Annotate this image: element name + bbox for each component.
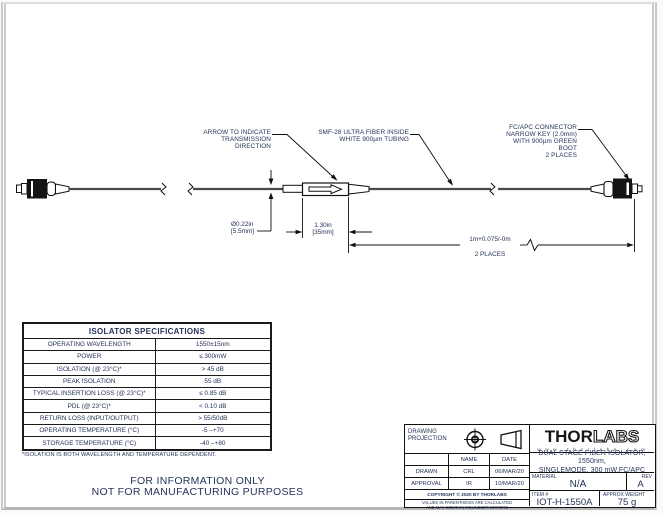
disclaimer-cell: VALUES IN PARENTHESIS ARE CALCULATED AND… [405,500,530,506]
table-row: OPERATING WAVELENGTH1550±15nm [23,339,271,351]
table-row: TYPICAL INSERTION LOSS (@ 23°C)*≤ 0.85 d… [23,388,271,400]
weight-cell: APPROX WEIGHT 75 g [600,491,654,506]
approval-label-cell: APPROVAL [405,478,449,490]
logo-thor-text: THOR [545,427,593,447]
table-row: ISOLATION (@ 23°C)*> 45 dB [23,363,271,375]
drawn-date-cell: 06/MAR/20 [490,466,530,478]
spec-label: OPERATING WAVELENGTH [23,339,155,351]
callout-transmission-arrow: ARROW TO INDICATE TRANSMISSION DIRECTION [184,129,271,150]
logo-labs-text: LABS [593,427,639,447]
drawing-sheet: ARROW TO INDICATE TRANSMISSION DIRECTION… [0,0,663,515]
isolator-spec-table: ISOLATOR SPECIFICATIONS OPERATING WAVELE… [22,322,272,451]
leader-arrowheads [331,173,630,185]
spec-label: STORAGE TEMPERATURE (°C) [23,437,155,450]
spec-table-title: ISOLATOR SPECIFICATIONS [23,323,271,339]
spec-value: -40 –+80 [155,437,271,450]
projection-cell: DRAWING PROJECTION [405,425,530,454]
table-row: STORAGE TEMPERATURE (°C)-40 –+80 [23,437,271,450]
rev-value: A [627,479,654,490]
item-cell: ITEM # IOT-H-1550A [530,491,600,506]
spec-value: ≤ 300mW [155,351,271,363]
item-number-value: IOT-H-1550A [530,497,599,508]
callout-fiber-tubing: SMF-28 ULTRA FIBER INSIDE WHITE 900µm TU… [318,129,409,143]
dimension-diameter: Ø0.22in [5.5mm] [231,221,267,236]
left-fcapc-connector [17,179,70,199]
copyright-cell: COPYRIGHT © 2020 BY THORLABS [405,490,530,500]
spec-label: POWER [23,351,155,363]
isolator-body [283,183,369,196]
table-row: PDL (@ 23°C)*< 0.10 dB [23,400,271,412]
blank-header-cell [405,454,449,466]
approval-name-cell: IR [449,478,490,490]
spec-value: -5 –+70 [155,425,271,437]
title-block: DRAWING PROJECTION NAME DATE DRAWN CRL 0… [404,424,656,508]
rev-cell: REV A [627,473,654,491]
spec-value: 1550±15nm [155,339,271,351]
projection-label: DRAWING PROJECTION [408,429,447,443]
spec-value: 55 dB [155,375,271,387]
spec-label: PEAK ISOLATION [23,375,155,387]
table-row: OPERATING TEMPERATURE (°C)-5 –+70 [23,425,271,437]
approval-date-cell: 10/MAR/20 [490,478,530,490]
spec-label: TYPICAL INSERTION LOSS (@ 23°C)* [23,388,155,400]
material-value: N/A [530,479,626,490]
spec-value: < 0.10 dB [155,400,271,412]
right-fcapc-connector [591,179,642,199]
spec-label: OPERATING TEMPERATURE (°C) [23,425,155,437]
spec-label: PDL (@ 23°C)* [23,400,155,412]
thorlabs-logo: THORLABS [530,427,654,447]
product-title-cell: DUAL STAGE FIBER ISOLATOR, 1550nm, SINGL… [530,453,654,473]
drawn-name-cell: CRL [449,466,490,478]
fiber-length-places: 2 PLACES [475,251,506,258]
spec-label: ISOLATION (@ 23°C)* [23,363,155,375]
name-header-cell: NAME [449,454,490,466]
spec-value: ≤ 0.85 dB [155,388,271,400]
information-only-notice: FOR INFORMATION ONLY NOT FOR MANUFACTURI… [90,476,305,498]
projection-symbols-icon [461,427,527,452]
table-row: POWER≤ 300mW [23,351,271,363]
dimension-body-length: 1.30in [35mm] [304,222,342,237]
dimension-fiber-length: 1m+0.075/-0m 2 PLACES [458,236,522,258]
table-row: PEAK ISOLATION55 dB [23,375,271,387]
table-row: RETURN LOSS (INPUT/OUTPUT)> 55/50dB [23,412,271,424]
spec-value: > 55/50dB [155,412,271,424]
fiber-length-value: 1m+0.075/-0m [469,236,510,243]
spec-value: > 45 dB [155,363,271,375]
product-title: DUAL STAGE FIBER ISOLATOR, 1550nm, SINGL… [530,450,654,476]
material-cell: MATERIAL N/A [530,473,627,491]
callout-connector: FC/APC CONNECTOR NARROW KEY (2.0mm) WITH… [496,124,577,159]
spec-label: RETURN LOSS (INPUT/OUTPUT) [23,412,155,424]
spec-footnote: *ISOLATION IS BOTH WAVELENGTH AND TEMPER… [22,452,352,458]
approx-weight-value: 75 g [600,497,654,508]
date-header-cell: DATE [490,454,530,466]
drawn-label-cell: DRAWN [405,466,449,478]
